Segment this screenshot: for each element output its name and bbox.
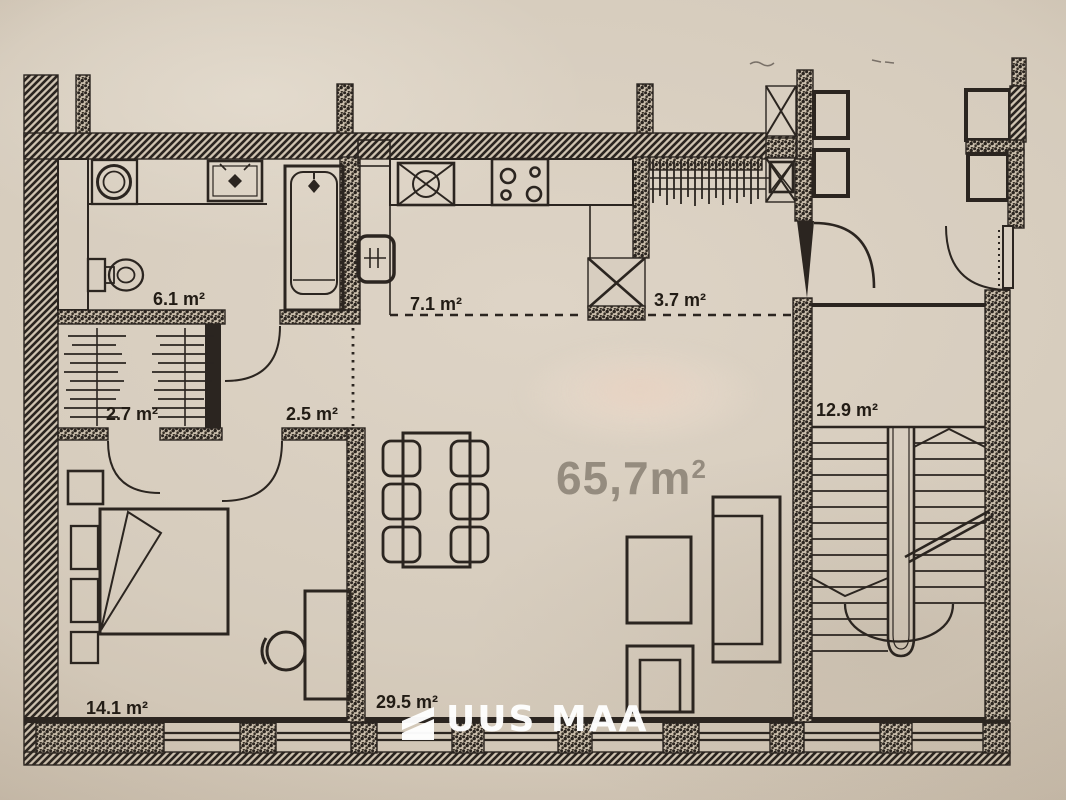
label-bedroom: 14.1 m² (86, 698, 148, 718)
wall-stub (76, 75, 90, 133)
label-wardrobe: 2.7 m² (106, 404, 158, 424)
floor-plan-photo: 6.1 m² 7.1 m² 3.7 m² 2.7 m² 2.5 m² 12.9 … (0, 0, 1066, 800)
kitchen-sink (398, 163, 454, 205)
bedside-unit (71, 632, 98, 663)
label-total-area: 65,7m2 (556, 452, 707, 504)
sofa (713, 497, 780, 662)
bedroom-door2-swing (222, 441, 282, 501)
washing-machine (92, 160, 137, 204)
wall-stub (337, 84, 353, 133)
bedside-unit (71, 579, 98, 622)
entry-door-leaf (797, 221, 814, 298)
stair-handrail (888, 427, 914, 656)
label-bathroom: 6.1 m² (153, 289, 205, 309)
bed (100, 509, 228, 634)
stairwell-door (946, 226, 1013, 290)
bathtub (285, 166, 343, 310)
dining-chairs (383, 441, 488, 562)
open-plan-boundaries (353, 315, 792, 426)
nightstand (68, 471, 103, 504)
bedroom-furniture (68, 471, 350, 699)
wall-stub (637, 84, 653, 133)
label-living: 29.5 m² (376, 692, 438, 712)
bed-blanket-fold (101, 512, 161, 630)
watermark-brand: UUS MAA (446, 699, 648, 740)
pencil-marks (750, 60, 894, 66)
bathroom-door-swing (225, 326, 280, 381)
duct-chase (58, 159, 88, 310)
entry-shaft-structure (766, 70, 848, 722)
bedside-unit (71, 526, 98, 569)
bedroom-door-swing (108, 441, 160, 493)
label-kitchen: 7.1 m² (410, 294, 462, 314)
label-stairwell: 12.9 m² (816, 400, 878, 420)
coffee-table (627, 537, 691, 623)
desk (305, 591, 350, 699)
bathroom (88, 160, 343, 310)
stove (492, 159, 548, 205)
label-hall: 2.5 m² (286, 404, 338, 424)
floor-plan-drawing: 6.1 m² 7.1 m² 3.7 m² 2.7 m² 2.5 m² 12.9 … (0, 0, 1066, 800)
label-entry-hall: 3.7 m² (654, 290, 706, 310)
faucet-icon (308, 179, 320, 193)
faucet-icon (228, 174, 242, 188)
desk-chair (267, 632, 305, 670)
water-heater (358, 236, 394, 282)
dining-table (403, 433, 470, 567)
bathroom-sink (208, 161, 262, 201)
exterior-walls (24, 75, 1010, 765)
stairwell-outer-structure (812, 58, 1026, 720)
toilet (88, 259, 143, 291)
entry-door (797, 221, 874, 298)
stairs (812, 427, 993, 656)
